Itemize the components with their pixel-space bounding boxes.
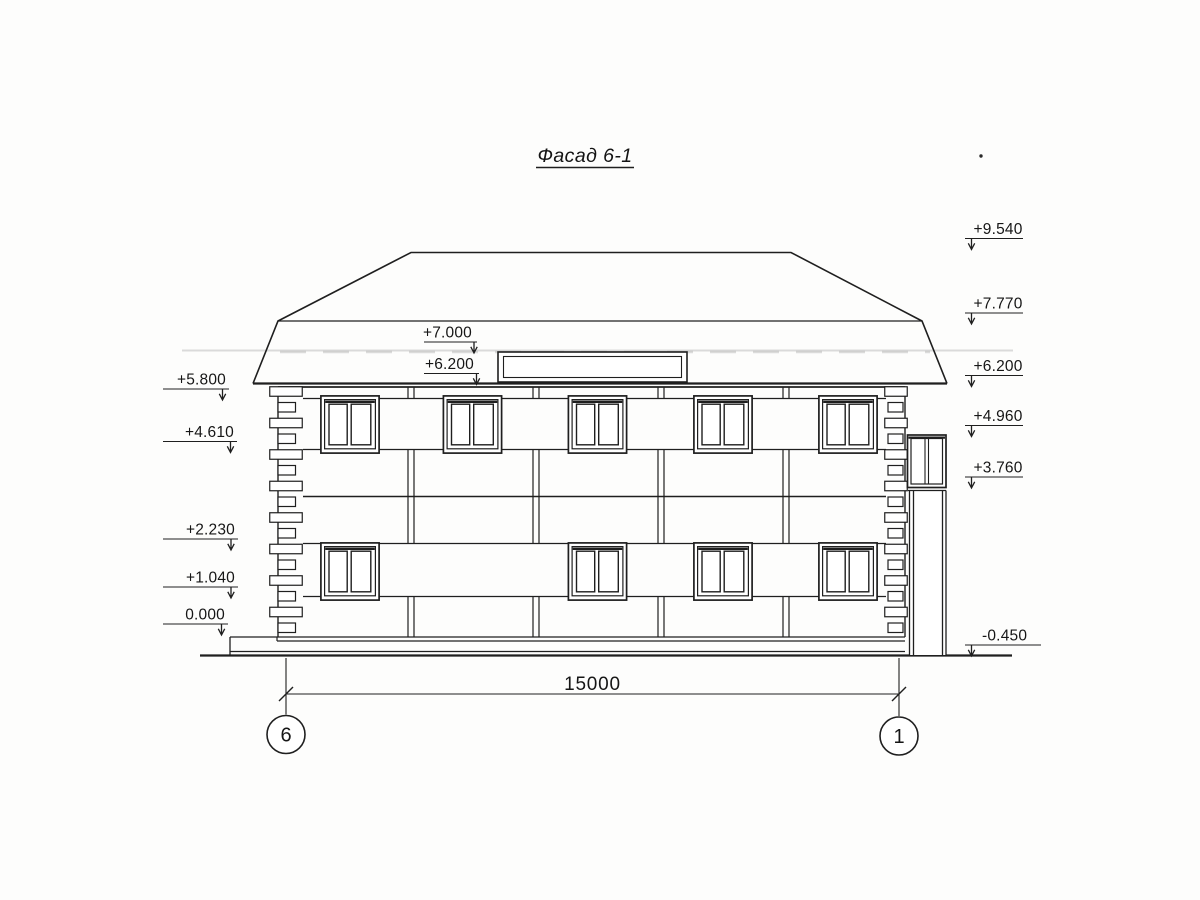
down-arrow-icon xyxy=(968,478,974,489)
window-upper-5 xyxy=(819,396,877,453)
elevation-mark-right-3760: +3.760 xyxy=(965,460,1023,489)
down-arrow-icon xyxy=(968,314,974,325)
down-arrow-icon xyxy=(219,390,225,401)
elevation-mark-right-m0450: -0.450 xyxy=(965,628,1041,657)
down-arrow-icon xyxy=(968,239,974,250)
window-lower-2 xyxy=(568,543,626,600)
title-block: Фасад 6-1 xyxy=(536,145,634,168)
axis-label: 1 xyxy=(893,726,904,748)
elevation-mark-left-1040: +1.040 xyxy=(163,570,238,599)
window-upper-4 xyxy=(694,396,752,453)
plinth xyxy=(200,637,1012,656)
sign-board xyxy=(498,352,687,382)
mark-label: +6.200 xyxy=(425,356,474,373)
elevation-mark-mid-6200: +6.200 xyxy=(424,356,480,385)
elevation-mark-right-4960: +4.960 xyxy=(965,408,1023,437)
down-arrow-icon xyxy=(968,426,974,437)
window-upper-3 xyxy=(568,396,626,453)
mark-label: +4.610 xyxy=(185,424,234,441)
elevation-mark-right-7770: +7.770 xyxy=(965,296,1023,325)
down-arrow-icon xyxy=(218,625,224,636)
mark-label: +9.540 xyxy=(974,221,1023,238)
mark-label: +2.230 xyxy=(186,522,235,539)
mark-label: +7.000 xyxy=(423,325,472,342)
brick-quoins-right xyxy=(884,386,908,637)
mark-label: +6.200 xyxy=(974,358,1023,375)
elevation-mark-mid-7000: +7.000 xyxy=(423,325,477,354)
down-arrow-icon xyxy=(228,540,234,551)
pilaster-3 xyxy=(658,387,664,637)
elevation-mark-right-6200: +6.200 xyxy=(965,358,1023,387)
scan-speck xyxy=(979,154,982,157)
axis-label: 6 xyxy=(280,725,291,747)
page-title: Фасад 6-1 xyxy=(538,145,633,167)
duct-fill xyxy=(910,491,947,656)
mark-label: +5.800 xyxy=(177,372,226,389)
pilaster-2 xyxy=(533,387,539,637)
brick-quoins-left xyxy=(269,386,303,637)
pilaster-1 xyxy=(408,387,414,637)
elevation-mark-left-4610: +4.610 xyxy=(163,424,237,453)
axis-bubble-1: 1 xyxy=(880,717,918,755)
pilaster-4 xyxy=(783,387,789,637)
down-arrow-icon xyxy=(228,588,234,599)
mark-label: +3.760 xyxy=(974,460,1023,477)
elevation-mark-right-9540: +9.540 xyxy=(965,221,1023,250)
elevation-mark-left-2230: +2.230 xyxy=(163,522,238,551)
axis-bubble-6: 6 xyxy=(267,716,305,754)
facade-drawing: +5.800 +4.610 +2.230 +1.040 0.000 +7.000… xyxy=(0,0,1200,900)
window-upper-2 xyxy=(443,396,501,453)
mark-label: +7.770 xyxy=(974,296,1023,313)
window-upper-1 xyxy=(321,396,379,453)
mark-label: 0.000 xyxy=(185,607,225,624)
elevation-mark-left-0000: 0.000 xyxy=(163,607,228,636)
drawing-sheet: +5.800 +4.610 +2.230 +1.040 0.000 +7.000… xyxy=(0,0,1200,900)
dimension-value: 15000 xyxy=(564,674,621,695)
mark-label: +4.960 xyxy=(974,408,1023,425)
window-lower-3 xyxy=(694,543,752,600)
elevation-mark-left-5800: +5.800 xyxy=(163,372,229,401)
down-arrow-icon xyxy=(227,442,233,453)
window-lower-1 xyxy=(321,543,379,600)
side-duct xyxy=(908,435,947,655)
mark-label: -0.450 xyxy=(982,628,1027,645)
duct-box-outer xyxy=(908,435,947,488)
mark-label: +1.040 xyxy=(186,570,235,587)
dimension: 15000 xyxy=(279,658,906,716)
down-arrow-icon xyxy=(968,376,974,387)
window-lower-4 xyxy=(819,543,877,600)
